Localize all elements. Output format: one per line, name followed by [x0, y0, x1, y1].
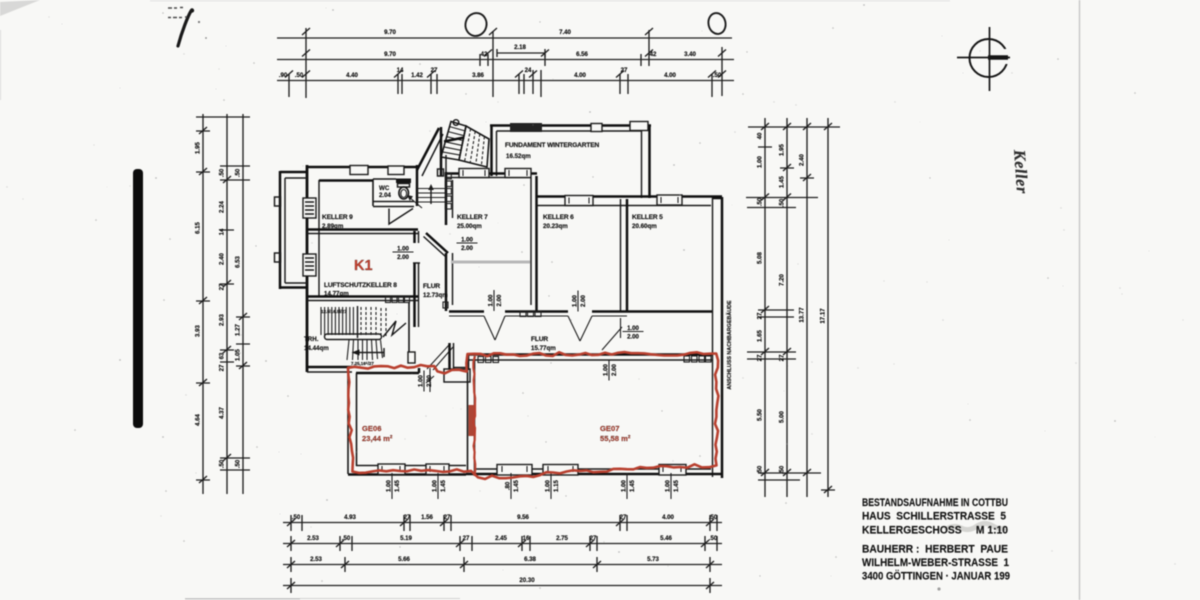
svg-text:6.38: 6.38 — [524, 556, 536, 563]
svg-text:27: 27 — [757, 312, 764, 319]
svg-text:20.60qm: 20.60qm — [632, 223, 657, 230]
svg-text:4.00: 4.00 — [664, 72, 676, 79]
svg-text:2.75: 2.75 — [556, 535, 568, 542]
svg-text:4.37: 4.37 — [219, 406, 226, 418]
svg-text:KELLERGESCHOSS M 1:10: KELLERGESCHOSS M 1:10 — [862, 525, 1008, 537]
svg-text:14.44qm: 14.44qm — [304, 345, 329, 352]
svg-text:14: 14 — [397, 67, 404, 74]
svg-text:55,58 m²: 55,58 m² — [600, 434, 631, 443]
svg-text:K1: K1 — [354, 258, 373, 274]
svg-text:.50: .50 — [709, 535, 718, 542]
svg-text:.50: .50 — [292, 514, 301, 521]
svg-text:6.53: 6.53 — [235, 255, 242, 267]
svg-text:.50: .50 — [757, 465, 764, 474]
svg-text:9.56: 9.56 — [517, 514, 529, 521]
svg-text:20.30: 20.30 — [519, 577, 535, 584]
svg-text:LUFTSCHUTZKELLER 8: LUFTSCHUTZKELLER 8 — [324, 282, 397, 289]
svg-text:7.40: 7.40 — [559, 29, 571, 36]
svg-text:2.00: 2.00 — [461, 245, 473, 252]
svg-text:FLUR: FLUR — [531, 336, 548, 343]
svg-text:7.20: 7.20 — [779, 273, 786, 285]
svg-text:27: 27 — [590, 535, 597, 542]
svg-text:3400 GÖTTINGEN · JANUAR 199: 3400 GÖTTINGEN · JANUAR 199 — [862, 570, 1010, 583]
svg-text:12.73qm: 12.73qm — [423, 292, 448, 299]
svg-text:27: 27 — [621, 67, 628, 74]
svg-text:2.53: 2.53 — [307, 535, 319, 542]
svg-text:3.86: 3.86 — [472, 72, 484, 79]
svg-text:25.00qm: 25.00qm — [457, 223, 482, 230]
svg-text:13.77: 13.77 — [799, 307, 806, 323]
svg-text:FLUR: FLUR — [423, 283, 440, 290]
svg-text:2.40: 2.40 — [219, 252, 226, 264]
svg-text:1.15: 1.15 — [553, 479, 560, 491]
svg-text:24: 24 — [525, 67, 532, 74]
svg-text:BESTANDSAUFNAHME IN COTTBU: BESTANDSAUFNAHME IN COTTBU — [862, 497, 1008, 509]
svg-text:1.95: 1.95 — [779, 143, 786, 155]
svg-text:FUNDAMENT WINTERGARTEN: FUNDAMENT WINTERGARTEN — [505, 142, 600, 149]
svg-text:2.53: 2.53 — [310, 556, 322, 563]
svg-text:.50: .50 — [779, 465, 786, 474]
svg-text:27: 27 — [779, 354, 786, 361]
svg-text:4.64: 4.64 — [195, 413, 202, 425]
svg-text:ANSCHLUSS NACHBARGEBÄUDE: ANSCHLUSS NACHBARGEBÄUDE — [726, 300, 733, 390]
svg-text:27: 27 — [620, 514, 627, 521]
svg-text:.50: .50 — [235, 168, 242, 177]
svg-text:2.18: 2.18 — [514, 44, 526, 51]
svg-text:15.77qm: 15.77qm — [531, 345, 556, 352]
svg-text:4.00: 4.00 — [662, 514, 674, 521]
svg-text:5.50: 5.50 — [757, 408, 764, 420]
svg-text:.50: .50 — [219, 168, 226, 177]
svg-text:2.00: 2.00 — [397, 254, 409, 261]
svg-text:14: 14 — [219, 228, 226, 235]
svg-text:2.45: 2.45 — [495, 535, 507, 542]
svg-text:16: 16 — [523, 535, 530, 542]
svg-text:.50: .50 — [219, 459, 226, 468]
svg-text:.50: .50 — [713, 72, 722, 79]
svg-text:23,44 m²: 23,44 m² — [362, 434, 393, 443]
svg-text:1.45: 1.45 — [394, 479, 401, 491]
svg-text:5.00: 5.00 — [779, 410, 786, 422]
svg-text:27: 27 — [219, 364, 226, 371]
svg-text:63: 63 — [219, 352, 226, 359]
svg-text:27: 27 — [404, 514, 411, 521]
svg-text:4.40: 4.40 — [346, 72, 358, 79]
svg-text:KELLER 5: KELLER 5 — [632, 214, 663, 221]
svg-text:KELLER 9: KELLER 9 — [322, 214, 353, 221]
svg-text:2.00: 2.00 — [611, 363, 618, 375]
svg-text:4.00: 4.00 — [574, 72, 586, 79]
svg-text:.90: .90 — [279, 72, 288, 79]
svg-text:WC: WC — [379, 185, 390, 192]
svg-text:1.45: 1.45 — [513, 479, 520, 491]
svg-text:1.45: 1.45 — [629, 479, 636, 491]
svg-text:1.00: 1.00 — [757, 155, 764, 167]
svg-text:27: 27 — [757, 354, 764, 361]
svg-text:2.00: 2.00 — [426, 374, 433, 386]
svg-text:9.70: 9.70 — [384, 51, 396, 58]
svg-text:1.45: 1.45 — [440, 479, 447, 491]
svg-text:1.56: 1.56 — [421, 514, 433, 521]
svg-text:2.24: 2.24 — [219, 200, 226, 212]
svg-text:5.73: 5.73 — [647, 556, 659, 563]
svg-text:KELLER 6: KELLER 6 — [543, 214, 574, 221]
svg-text:GE06: GE06 — [362, 424, 381, 433]
svg-text:2.00: 2.00 — [580, 294, 587, 306]
svg-text:42: 42 — [650, 51, 657, 58]
svg-text:1.00: 1.00 — [461, 237, 473, 244]
svg-text:16.52qm: 16.52qm — [506, 153, 531, 160]
svg-text:6.15: 6.15 — [195, 221, 202, 233]
svg-text:9.70: 9.70 — [384, 29, 396, 36]
svg-text:3.40: 3.40 — [684, 51, 696, 58]
svg-text:27: 27 — [431, 67, 438, 74]
svg-text:1.45: 1.45 — [673, 479, 680, 491]
svg-text:5.08: 5.08 — [757, 251, 764, 263]
svg-text:2.40: 2.40 — [799, 153, 806, 165]
svg-text:1.45: 1.45 — [779, 175, 786, 187]
svg-text:4.93: 4.93 — [344, 514, 356, 521]
svg-text:WILHELM-WEBER-STRASSE 1: WILHELM-WEBER-STRASSE 1 — [862, 557, 1009, 569]
svg-text:20.23qm: 20.23qm — [543, 223, 568, 230]
svg-text:Keller: Keller — [1010, 148, 1032, 195]
svg-text:.50: .50 — [295, 72, 304, 79]
svg-text:5.66: 5.66 — [398, 556, 410, 563]
svg-text:1.95: 1.95 — [195, 141, 202, 153]
svg-text:KELLER 7: KELLER 7 — [457, 214, 488, 221]
svg-text:6.56: 6.56 — [576, 51, 588, 58]
svg-text:40: 40 — [757, 132, 764, 139]
svg-text:.50: .50 — [235, 459, 242, 468]
svg-text:.50: .50 — [779, 198, 786, 207]
svg-text:27: 27 — [444, 514, 451, 521]
svg-text:.50: .50 — [342, 535, 351, 542]
svg-text:2.00: 2.00 — [627, 334, 639, 341]
svg-text:12.5l16.5l/27: 12.5l16.5l/27 — [321, 309, 347, 314]
svg-text:GE07: GE07 — [600, 424, 619, 433]
svg-text:.50: .50 — [709, 514, 718, 521]
svg-text:7.25,16⁵/27: 7.25,16⁵/27 — [351, 361, 374, 366]
svg-text:1.05: 1.05 — [235, 348, 242, 360]
svg-text:HAUS SCHILLERSTRASSE 5: HAUS SCHILLERSTRASSE 5 — [862, 511, 1006, 523]
svg-text:1.00: 1.00 — [397, 246, 409, 253]
svg-text:TRH.: TRH. — [304, 336, 319, 343]
svg-text:1.27: 1.27 — [235, 323, 242, 335]
svg-text:42: 42 — [481, 51, 488, 58]
svg-text:2.00: 2.00 — [496, 294, 503, 306]
svg-text:BAUHERR : HERBERT PAUE: BAUHERR : HERBERT PAUE — [862, 544, 1008, 556]
svg-text:3.93: 3.93 — [195, 324, 202, 336]
svg-text:1.42: 1.42 — [411, 72, 423, 79]
svg-text:.50: .50 — [757, 197, 764, 206]
svg-text:17.17: 17.17 — [820, 308, 827, 324]
svg-text:2.04: 2.04 — [379, 192, 391, 199]
svg-text:2.93: 2.93 — [219, 313, 226, 325]
svg-text:2.89qm: 2.89qm — [322, 223, 344, 230]
svg-text:1.65: 1.65 — [757, 329, 764, 341]
svg-text:5.46: 5.46 — [660, 535, 672, 542]
svg-text:27: 27 — [463, 535, 470, 542]
svg-text:5.19: 5.19 — [400, 535, 412, 542]
svg-text:27: 27 — [219, 283, 226, 290]
